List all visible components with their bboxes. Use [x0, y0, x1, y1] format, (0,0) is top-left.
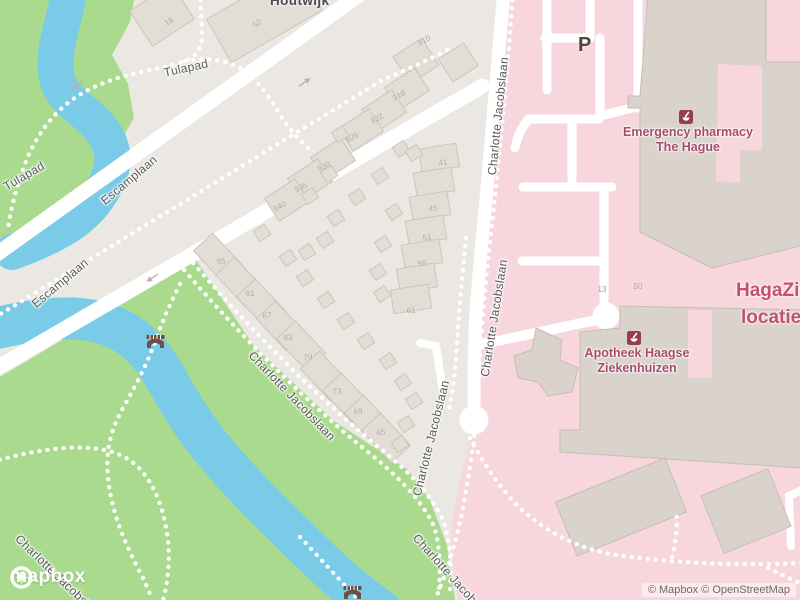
mapbox-logo-icon: [10, 566, 33, 589]
map-tiles: [0, 0, 800, 600]
pharmacy-icon: [627, 331, 641, 345]
mapbox-logo[interactable]: mapbox: [10, 566, 86, 588]
map-canvas[interactable]: Houtwijk P Tulapad Tulapad Escamplaan Es…: [0, 0, 800, 600]
turning-circle: [593, 303, 620, 330]
pharmacy-icon: [679, 110, 693, 124]
map-attribution[interactable]: © Mapbox © OpenStreetMap: [642, 583, 796, 597]
